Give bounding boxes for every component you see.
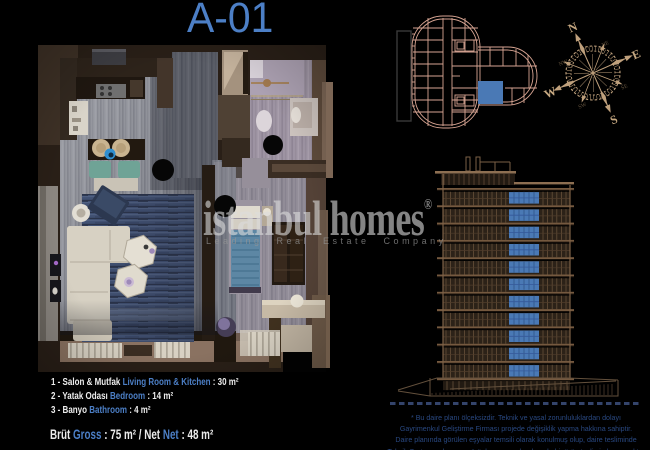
svg-text:SW: SW: [578, 101, 589, 110]
svg-text:NE: NE: [601, 40, 611, 49]
svg-text:N: N: [566, 19, 580, 35]
svg-text:NW: NW: [558, 58, 570, 68]
svg-text:E: E: [630, 46, 643, 62]
svg-text:SE: SE: [620, 83, 629, 91]
svg-text:W: W: [542, 84, 559, 102]
svg-text:S: S: [608, 112, 620, 128]
